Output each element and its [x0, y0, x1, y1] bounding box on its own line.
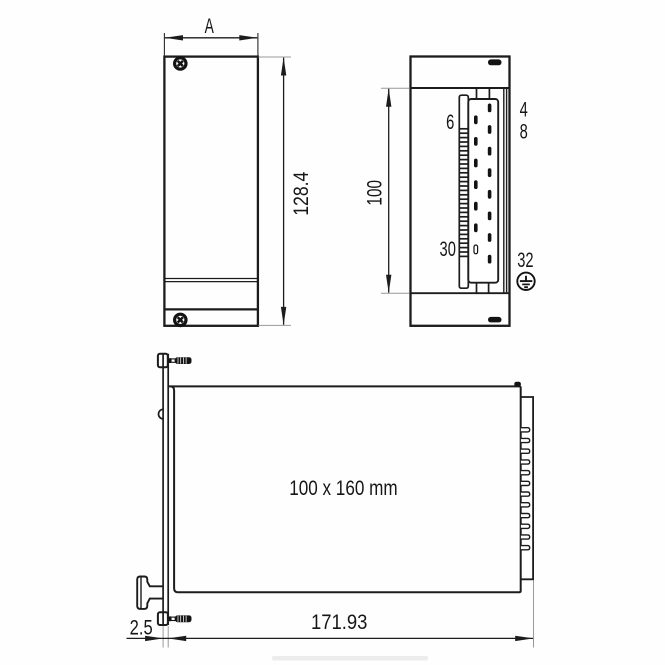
svg-text:A: A	[205, 14, 214, 38]
svg-text:100: 100	[362, 180, 386, 206]
svg-text:128.4: 128.4	[290, 171, 314, 215]
svg-text:171.93: 171.93	[311, 611, 367, 634]
svg-text:6: 6	[446, 110, 454, 133]
svg-text:32: 32	[517, 248, 533, 271]
svg-text:30: 30	[440, 237, 456, 260]
svg-text:4: 4	[520, 98, 528, 121]
svg-text:8: 8	[520, 120, 528, 143]
svg-text:100 x 160 mm: 100 x 160 mm	[289, 477, 397, 500]
svg-text:2.5: 2.5	[130, 617, 153, 640]
